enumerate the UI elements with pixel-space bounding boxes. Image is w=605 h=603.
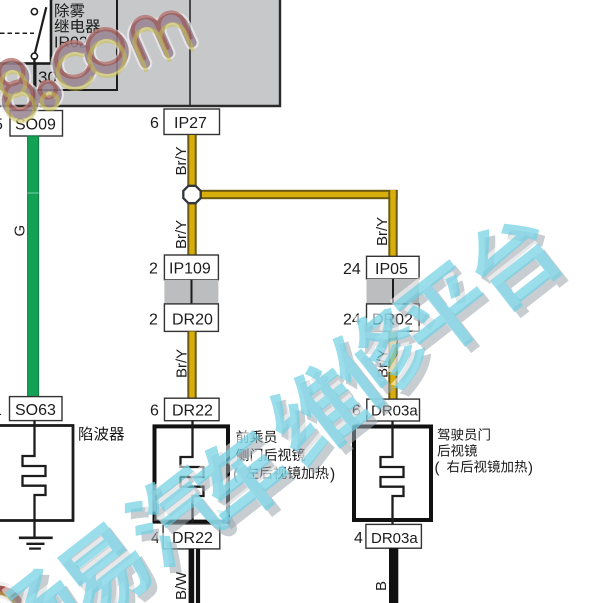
svg-text:24: 24 — [343, 261, 361, 278]
svg-text:): ) — [528, 460, 533, 477]
svg-text:SO63: SO63 — [15, 402, 56, 419]
svg-text:B/W: B/W — [173, 571, 190, 600]
svg-text:1: 1 — [0, 402, 2, 419]
svg-text:Br/Y: Br/Y — [173, 220, 190, 249]
svg-text:IP109: IP109 — [169, 261, 211, 278]
svg-text:IP05: IP05 — [375, 261, 408, 278]
svg-text:6: 6 — [150, 403, 159, 420]
svg-text:2: 2 — [149, 312, 158, 329]
svg-text:5: 5 — [0, 117, 3, 134]
svg-text:IP27: IP27 — [174, 115, 207, 132]
svg-text:DR20: DR20 — [172, 312, 213, 329]
svg-text:B: B — [373, 581, 390, 591]
svg-text:DR22: DR22 — [172, 530, 213, 547]
svg-text:Br/Y: Br/Y — [174, 349, 191, 378]
svg-text:G: G — [12, 225, 29, 237]
svg-text:2: 2 — [149, 261, 158, 278]
svg-text:4: 4 — [354, 530, 363, 547]
svg-text:(: ( — [435, 460, 440, 477]
svg-text:DR03a: DR03a — [371, 530, 418, 547]
svg-text:DR22: DR22 — [172, 403, 213, 420]
svg-text:Br/Y: Br/Y — [173, 146, 190, 175]
svg-text:Br/Y: Br/Y — [374, 217, 391, 246]
svg-text:6: 6 — [150, 115, 159, 132]
svg-text:): ) — [330, 466, 335, 483]
